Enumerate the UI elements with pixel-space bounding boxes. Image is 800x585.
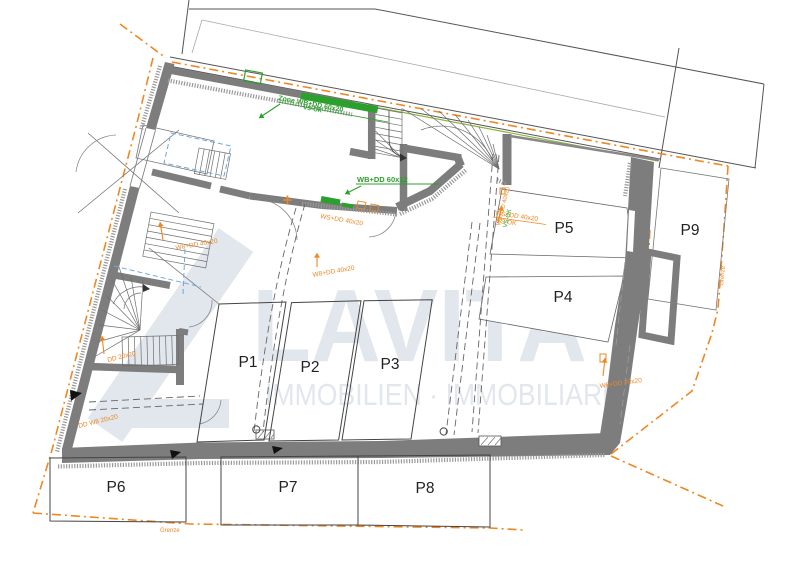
svg-text:P8: P8: [416, 480, 435, 497]
svg-text:P6: P6: [107, 479, 126, 496]
svg-text:WB+DD 60x12: WB+DD 60x12: [357, 175, 408, 184]
svg-text:P3: P3: [381, 356, 400, 373]
svg-text:P7: P7: [279, 479, 298, 496]
svg-text:P1: P1: [239, 354, 258, 371]
svg-text:P9: P9: [681, 222, 700, 239]
svg-text:P4: P4: [554, 289, 573, 306]
svg-text:Grenze: Grenze: [160, 528, 180, 534]
svg-text:P5: P5: [555, 220, 574, 237]
svg-text:IMMOBILIEN · IMMOBILIARE: IMMOBILIEN · IMMOBILIARE: [265, 377, 620, 412]
svg-text:P2: P2: [301, 359, 320, 376]
